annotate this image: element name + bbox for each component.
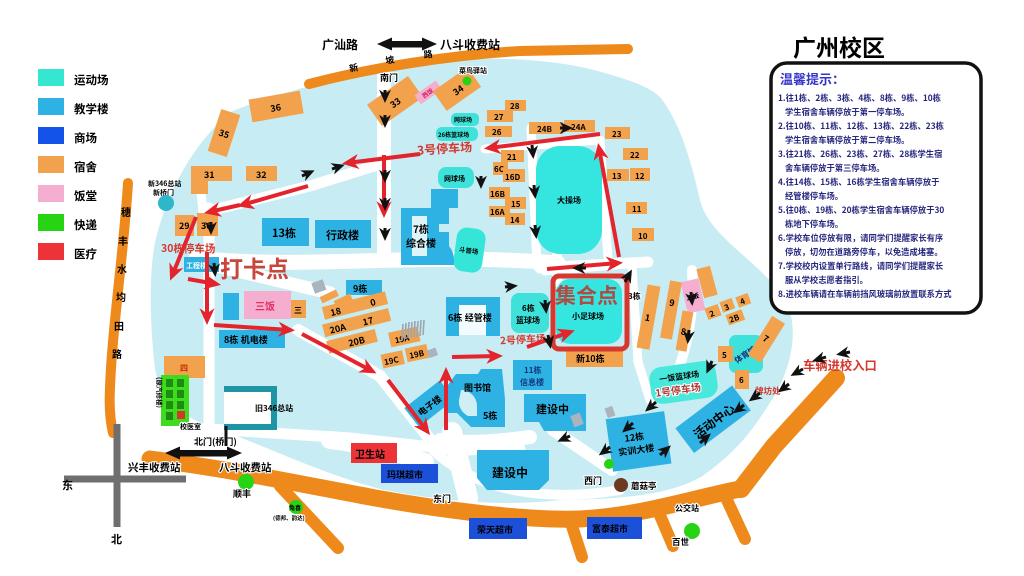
svg-text:图书馆: 图书馆 <box>464 381 491 394</box>
svg-text:新10栋: 新10栋 <box>576 352 605 365</box>
svg-text:商场: 商场 <box>74 130 97 146</box>
svg-text:学生宿舍车辆停放于第一停车场。: 学生宿舍车辆停放于第一停车场。 <box>785 106 909 118</box>
svg-text:丰: 丰 <box>118 233 128 248</box>
svg-text:15: 15 <box>511 199 521 210</box>
svg-text:22: 22 <box>630 150 640 161</box>
svg-text:6.学校车位停放有限，请同学们提醒家长有序: 6.学校车位停放有限，请同学们提醒家长有序 <box>778 232 943 244</box>
svg-text:3.往21栋、26栋、23栋、27栋、28栋学生宿: 3.往21栋、26栋、23栋、27栋、28栋学生宿 <box>778 148 942 160</box>
svg-text:30栋停车场: 30栋停车场 <box>161 241 216 256</box>
svg-text:(原汽修楼): (原汽修楼) <box>155 377 165 408</box>
svg-text:南门: 南门 <box>380 71 398 84</box>
svg-text:学生宿舍车辆停放于第二停车场。: 学生宿舍车辆停放于第二停车场。 <box>785 134 909 146</box>
svg-text:经管楼停车场。: 经管楼停车场。 <box>785 190 843 202</box>
svg-text:网球场: 网球场 <box>454 115 472 124</box>
svg-text:三: 三 <box>294 305 302 316</box>
svg-text:舍车辆停放于第三停车场。: 舍车辆停放于第三停车场。 <box>785 162 885 174</box>
svg-text:5栋: 5栋 <box>483 409 497 422</box>
svg-text:三饭: 三饭 <box>255 298 275 313</box>
svg-text:21: 21 <box>507 152 517 163</box>
svg-text:13栋: 13栋 <box>272 225 296 241</box>
svg-text:快递: 快递 <box>74 217 97 233</box>
svg-text:玛琪超市: 玛琪超市 <box>387 468 423 481</box>
svg-text:菜鸟驿站: 菜鸟驿站 <box>459 66 487 76</box>
svg-text:八斗收费站: 八斗收费站 <box>440 36 500 53</box>
svg-text:16A: 16A <box>490 207 505 218</box>
svg-text:北: 北 <box>111 531 122 547</box>
svg-text:广州校区: 广州校区 <box>793 29 885 63</box>
svg-text:旧346总站: 旧346总站 <box>255 403 293 414</box>
svg-text:36: 36 <box>269 100 282 115</box>
svg-text:23: 23 <box>612 129 622 140</box>
svg-text:3栋: 3栋 <box>628 291 641 302</box>
svg-text:校医室: 校医室 <box>180 422 201 432</box>
svg-text:宿舍: 宿舍 <box>74 159 97 175</box>
svg-text:7栋: 7栋 <box>413 221 429 236</box>
svg-text:12: 12 <box>635 171 645 182</box>
svg-text:7.学校校内设置单行路线，请同学们提醒家长: 7.学校校内设置单行路线，请同学们提醒家长 <box>778 260 944 272</box>
svg-text:路: 路 <box>112 346 122 361</box>
svg-text:篮球场: 篮球场 <box>516 315 540 326</box>
svg-text:八斗收费站: 八斗收费站 <box>219 460 272 475</box>
svg-text:24A: 24A <box>571 122 586 133</box>
svg-text:9栋: 9栋 <box>353 282 367 295</box>
svg-text:6栋 经管楼: 6栋 经管楼 <box>448 311 492 324</box>
svg-text:西门: 西门 <box>584 474 602 487</box>
svg-text:综合楼: 综合楼 <box>406 235 436 250</box>
svg-text:24B: 24B <box>537 124 552 135</box>
svg-text:医疗: 医疗 <box>74 246 97 262</box>
svg-text:穗: 穗 <box>121 204 131 219</box>
svg-text:16B: 16B <box>490 189 505 200</box>
svg-text:29: 29 <box>179 219 190 232</box>
svg-text:小足球场: 小足球场 <box>572 311 604 322</box>
svg-text:东门: 东门 <box>433 492 451 505</box>
svg-text:兔喜: 兔喜 <box>289 503 301 512</box>
svg-text:11栋: 11栋 <box>524 365 541 376</box>
svg-text:荣天超市: 荣天超市 <box>477 523 513 536</box>
svg-text:百世: 百世 <box>672 536 690 548</box>
svg-text:服从学校志愿者指引。: 服从学校志愿者指引。 <box>785 274 868 286</box>
svg-text:公交站: 公交站 <box>675 503 699 514</box>
svg-text:教学楼: 教学楼 <box>74 101 109 117</box>
svg-text:北门(桥门): 北门(桥门) <box>194 435 237 448</box>
svg-text:顺丰: 顺丰 <box>233 487 251 500</box>
svg-text:27: 27 <box>494 112 504 123</box>
svg-text:建设中: 建设中 <box>492 464 528 481</box>
svg-text:8栋 机电楼: 8栋 机电楼 <box>224 333 268 346</box>
svg-text:31: 31 <box>204 168 215 181</box>
svg-text:集合点: 集合点 <box>555 280 618 310</box>
svg-text:水: 水 <box>117 261 127 276</box>
svg-text:10: 10 <box>638 231 648 242</box>
svg-text:大操场: 大操场 <box>557 195 581 206</box>
svg-text:32: 32 <box>256 168 267 181</box>
svg-text:5: 5 <box>722 350 727 361</box>
svg-text:6栋: 6栋 <box>522 303 535 314</box>
svg-text:栋地下停车场。: 栋地下停车场。 <box>785 218 843 230</box>
svg-text:四: 四 <box>180 363 188 374</box>
svg-text:运动场: 运动场 <box>74 72 109 88</box>
svg-text:5.往0栋、19栋、20栋学生宿舍车辆停放于30: 5.往0栋、19栋、20栋学生宿舍车辆停放于30 <box>778 204 944 216</box>
svg-text:富泰超市: 富泰超市 <box>592 522 628 535</box>
svg-text:4.往14栋、15栋、16栋学生宿舍车辆停放于: 4.往14栋、15栋、16栋学生宿舍车辆停放于 <box>778 176 939 188</box>
svg-text:13: 13 <box>612 171 622 182</box>
svg-text:车辆进校入口: 车辆进校入口 <box>803 356 877 374</box>
svg-text:26: 26 <box>492 127 502 138</box>
svg-text:(德邦、韵达): (德邦、韵达) <box>273 514 305 522</box>
svg-text:11: 11 <box>632 204 642 215</box>
svg-text:8.进校车辆请在车辆前挡风玻璃前放置联系方式: 8.进校车辆请在车辆前挡风玻璃前放置联系方式 <box>778 288 952 300</box>
svg-text:卫生站: 卫生站 <box>355 446 385 461</box>
svg-text:饭堂: 饭堂 <box>74 188 97 204</box>
svg-text:工程楼: 工程楼 <box>186 261 207 271</box>
svg-text:6: 6 <box>739 375 744 386</box>
svg-text:广汕路: 广汕路 <box>322 36 358 53</box>
svg-text:1.往1栋、2栋、3栋、4栋、8栋、9栋、10栋: 1.往1栋、2栋、3栋、4栋、8栋、9栋、10栋 <box>778 92 942 104</box>
svg-text:2号停车场: 2号停车场 <box>500 330 547 347</box>
svg-text:2.往10栋、11栋、12栋、13栋、22栋、23栋: 2.往10栋、11栋、12栋、13栋、22栋、23栋 <box>778 120 945 132</box>
svg-text:14: 14 <box>510 215 520 226</box>
svg-text:16D: 16D <box>505 172 520 183</box>
svg-text:东: 东 <box>62 477 73 493</box>
svg-text:均: 均 <box>116 289 126 304</box>
svg-text:网球场: 网球场 <box>444 174 465 184</box>
svg-text:兴丰收费站: 兴丰收费站 <box>128 460 181 475</box>
svg-text:温馨提示：: 温馨提示： <box>780 69 845 88</box>
svg-text:蘑菇亭: 蘑菇亭 <box>631 480 657 492</box>
svg-text:建设中: 建设中 <box>536 401 569 417</box>
svg-text:行政楼: 行政楼 <box>326 227 359 243</box>
svg-text:田: 田 <box>114 318 124 333</box>
svg-text:打卡点: 打卡点 <box>220 250 289 284</box>
svg-text:信息楼: 信息楼 <box>520 377 544 388</box>
svg-text:停放，切勿在道路旁停车，以免造成堵塞。: 停放，切勿在道路旁停车，以免造成堵塞。 <box>785 246 943 258</box>
